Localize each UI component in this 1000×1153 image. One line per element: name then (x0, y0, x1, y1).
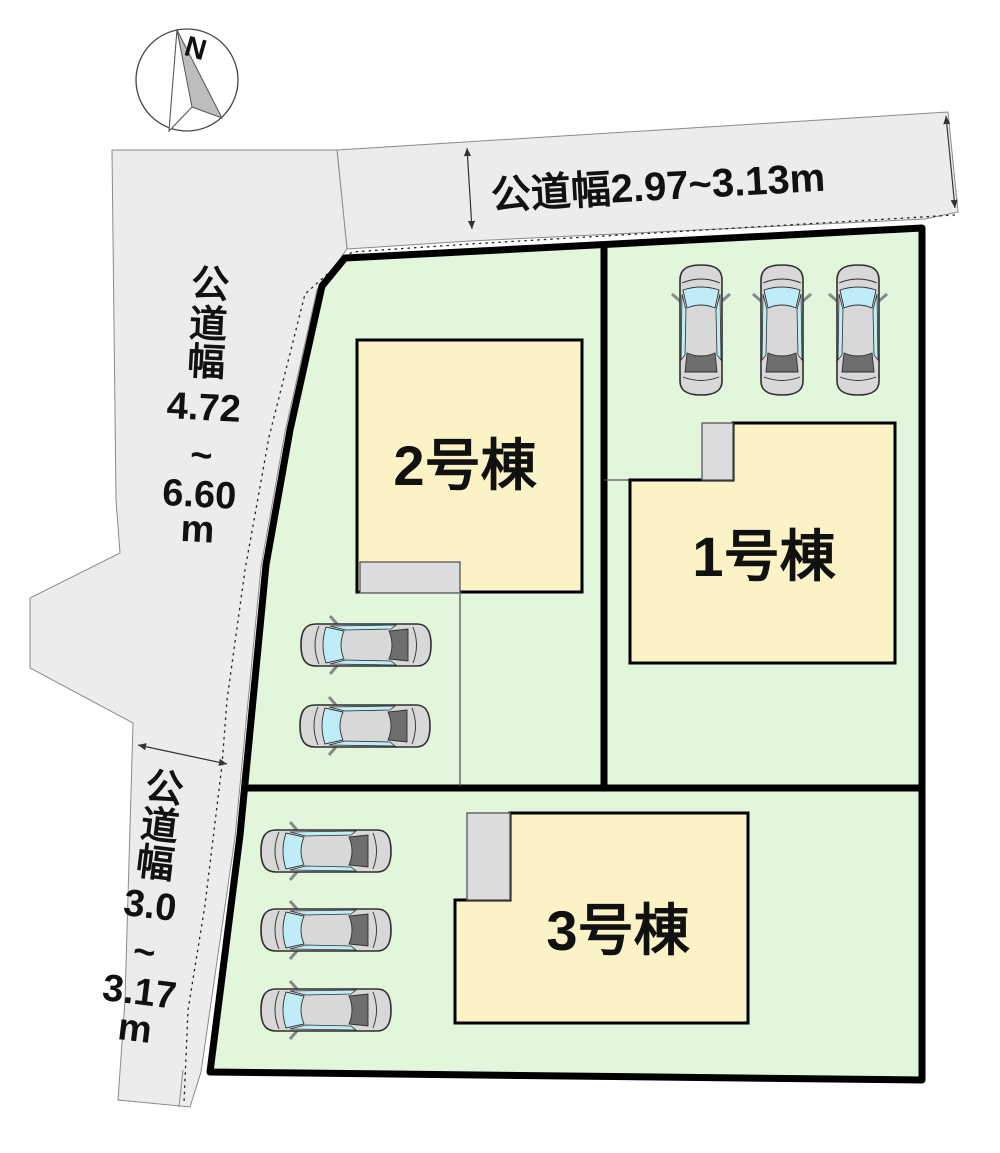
road-southwest-label-line: 幅 (134, 841, 177, 887)
building-1-porch (702, 423, 733, 480)
building-3-porch (467, 813, 510, 900)
road-west-label-line: 公 (190, 263, 230, 307)
building-3-label: 3号棟 (546, 899, 690, 962)
parking-lot3 (261, 822, 391, 1039)
building-3: 3号棟 (455, 813, 748, 1023)
car-icon (301, 616, 431, 674)
building-2-porch (360, 562, 460, 593)
building-1-label: 1号棟 (692, 525, 836, 588)
car-icon (261, 981, 391, 1039)
road-west-label-line: m (179, 508, 215, 552)
car-icon (261, 901, 391, 959)
road-southwest-label-line: 3.0 (121, 882, 179, 930)
car-icon (261, 822, 391, 880)
building-2: 2号棟 (357, 340, 582, 593)
road-west-label-line: 4.72 (166, 385, 242, 431)
road-west-label-line: ~ (189, 434, 213, 477)
site-plan-svg: 2号棟 1号棟 3号棟 公道幅2.97~3.13m 公 道 幅 4.72 ~ 6… (0, 0, 1000, 1153)
car-icon (753, 265, 811, 395)
parking-lot1 (672, 265, 887, 395)
building-2-label: 2号棟 (393, 434, 537, 497)
site-plan-page: 2号棟 1号棟 3号棟 公道幅2.97~3.13m 公 道 幅 4.72 ~ 6… (0, 0, 1000, 1153)
north-compass: N (136, 29, 238, 131)
car-icon (829, 265, 887, 395)
car-icon (672, 265, 730, 395)
road-west-label-line: 幅 (186, 341, 226, 385)
road-southwest-label-line: m (116, 1006, 155, 1052)
car-icon (300, 697, 430, 755)
